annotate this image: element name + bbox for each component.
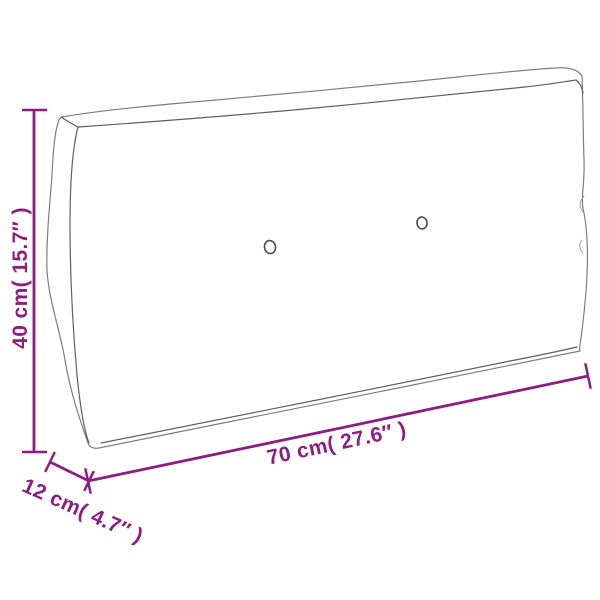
height-dimension-label: 40 cm( 15.7″ ) [9,207,32,349]
depth-dimension: 12 cm( 4.7″ ) [19,452,147,548]
depth-dimension-line [50,462,89,481]
product-dimension-diagram: 40 cm( 15.7″ ) 70 cm( 27.6″ ) 12 cm( 4.7… [0,0,600,600]
depth-dimension-label: 12 cm( 4.7″ ) [19,474,147,548]
depth-dimension-cap-left [45,452,55,472]
width-dimension-label: 70 cm( 27.6″ ) [265,418,408,470]
height-dimension: 40 cm( 15.7″ ) [9,110,47,452]
cushion-outline [47,68,588,448]
cushion-button-right-icon [416,216,428,229]
diagram-svg: 40 cm( 15.7″ ) 70 cm( 27.6″ ) 12 cm( 4.7… [0,0,600,600]
cushion-drawing [47,68,588,448]
